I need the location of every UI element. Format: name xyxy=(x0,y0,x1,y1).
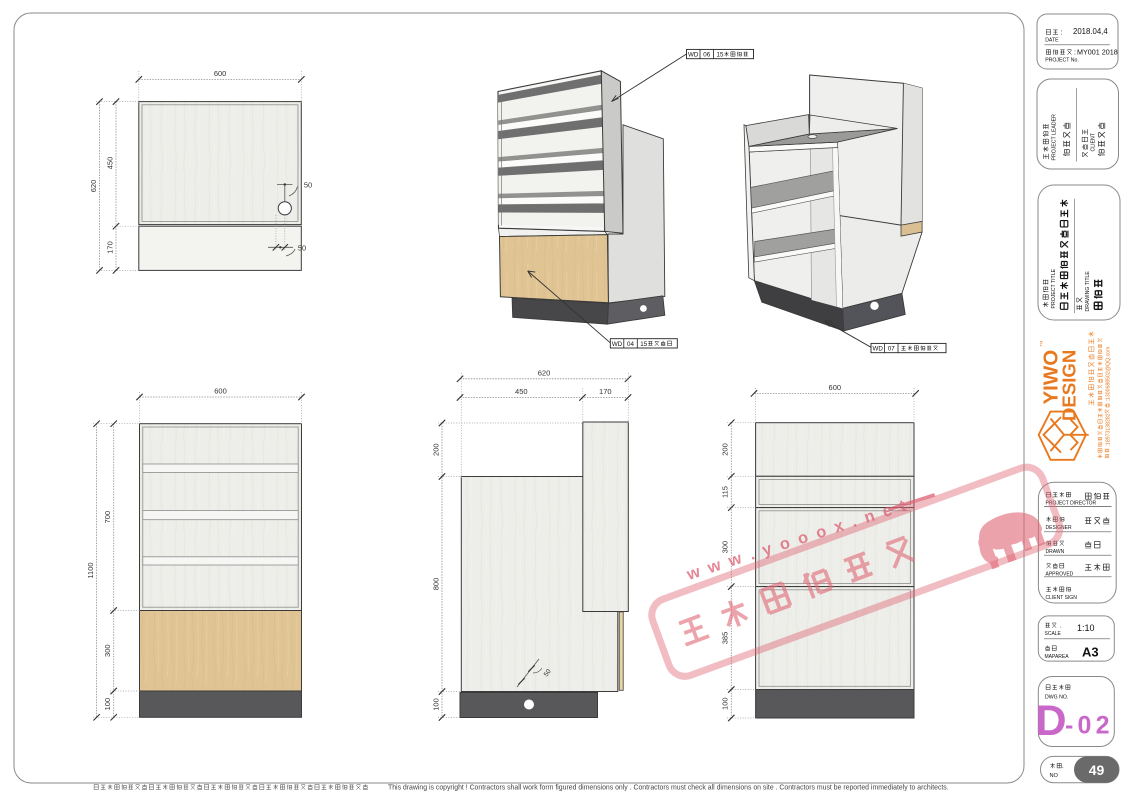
svg-text:600: 600 xyxy=(214,69,227,78)
svg-text:385: 385 xyxy=(721,632,730,645)
svg-text:1100: 1100 xyxy=(86,562,95,578)
svg-text:600: 600 xyxy=(829,383,842,392)
svg-text:450: 450 xyxy=(106,157,115,170)
svg-text:-02: -02 xyxy=(1065,712,1114,740)
svg-text::1300688502@QQ.com: :1300688502@QQ.com xyxy=(1106,347,1112,402)
svg-text:DATE: DATE xyxy=(1045,38,1059,44)
svg-text:MAPAREA: MAPAREA xyxy=(1045,654,1070,660)
svg-text::18973138282: :18973138282 xyxy=(1106,413,1112,446)
svg-text:1:10: 1:10 xyxy=(1077,623,1095,633)
svg-text:CLIENT: CLIENT xyxy=(1091,132,1097,151)
svg-text:115: 115 xyxy=(721,486,730,498)
svg-text::: : xyxy=(1074,50,1076,57)
svg-text:SCALE: SCALE xyxy=(1045,631,1062,637)
svg-text:PROJECT LEADER: PROJECT LEADER xyxy=(1052,114,1058,161)
svg-text:WD: WD xyxy=(688,52,699,59)
svg-text:CLIENT SIGN: CLIENT SIGN xyxy=(1046,595,1078,601)
svg-text:D: D xyxy=(1036,697,1067,745)
svg-text:PROJECT TITLE: PROJECT TITLE xyxy=(1051,268,1057,308)
svg-text:100: 100 xyxy=(431,698,440,711)
svg-text:04: 04 xyxy=(627,341,634,348)
svg-text:620: 620 xyxy=(538,368,551,377)
svg-text:A3: A3 xyxy=(1082,645,1099,660)
svg-text:2018.04,4: 2018.04,4 xyxy=(1073,27,1108,36)
svg-text:WD: WD xyxy=(873,346,884,353)
svg-text:MY001 2018: MY001 2018 xyxy=(1077,48,1118,57)
svg-text:DRAWING TITLE: DRAWING TITLE xyxy=(1085,271,1091,312)
svg-text:170: 170 xyxy=(106,241,115,254)
svg-text:DESIGN: DESIGN xyxy=(1059,350,1080,421)
svg-text:WD: WD xyxy=(612,341,623,348)
svg-text:NO: NO xyxy=(1050,773,1059,779)
svg-text:300: 300 xyxy=(103,644,112,657)
svg-text:200: 200 xyxy=(721,443,730,456)
svg-text:450: 450 xyxy=(515,387,528,396)
svg-text:100: 100 xyxy=(721,697,730,710)
svg-text:49: 49 xyxy=(1089,762,1105,778)
svg-text:PROJECT No.: PROJECT No. xyxy=(1045,58,1079,64)
svg-text:100: 100 xyxy=(103,698,112,711)
svg-text::: : xyxy=(1061,30,1063,37)
svg-text:15: 15 xyxy=(640,341,647,348)
svg-text:TM: TM xyxy=(1039,341,1044,347)
svg-text:15: 15 xyxy=(717,52,724,59)
svg-text:06: 06 xyxy=(703,52,710,59)
svg-text:This drawing is copyright ! C: This drawing is copyright ! Contractors … xyxy=(388,785,949,792)
svg-text:300: 300 xyxy=(721,541,730,554)
svg-text:700: 700 xyxy=(103,511,112,524)
svg-text:DRAWN: DRAWN xyxy=(1046,549,1065,555)
svg-text:600: 600 xyxy=(214,387,227,396)
svg-text:800: 800 xyxy=(431,578,440,591)
svg-text:620: 620 xyxy=(89,180,98,193)
svg-text:07: 07 xyxy=(888,346,895,353)
svg-text:50: 50 xyxy=(298,244,306,253)
svg-text:200: 200 xyxy=(431,443,440,456)
svg-text:50: 50 xyxy=(304,181,312,190)
svg-text:170: 170 xyxy=(599,387,612,396)
